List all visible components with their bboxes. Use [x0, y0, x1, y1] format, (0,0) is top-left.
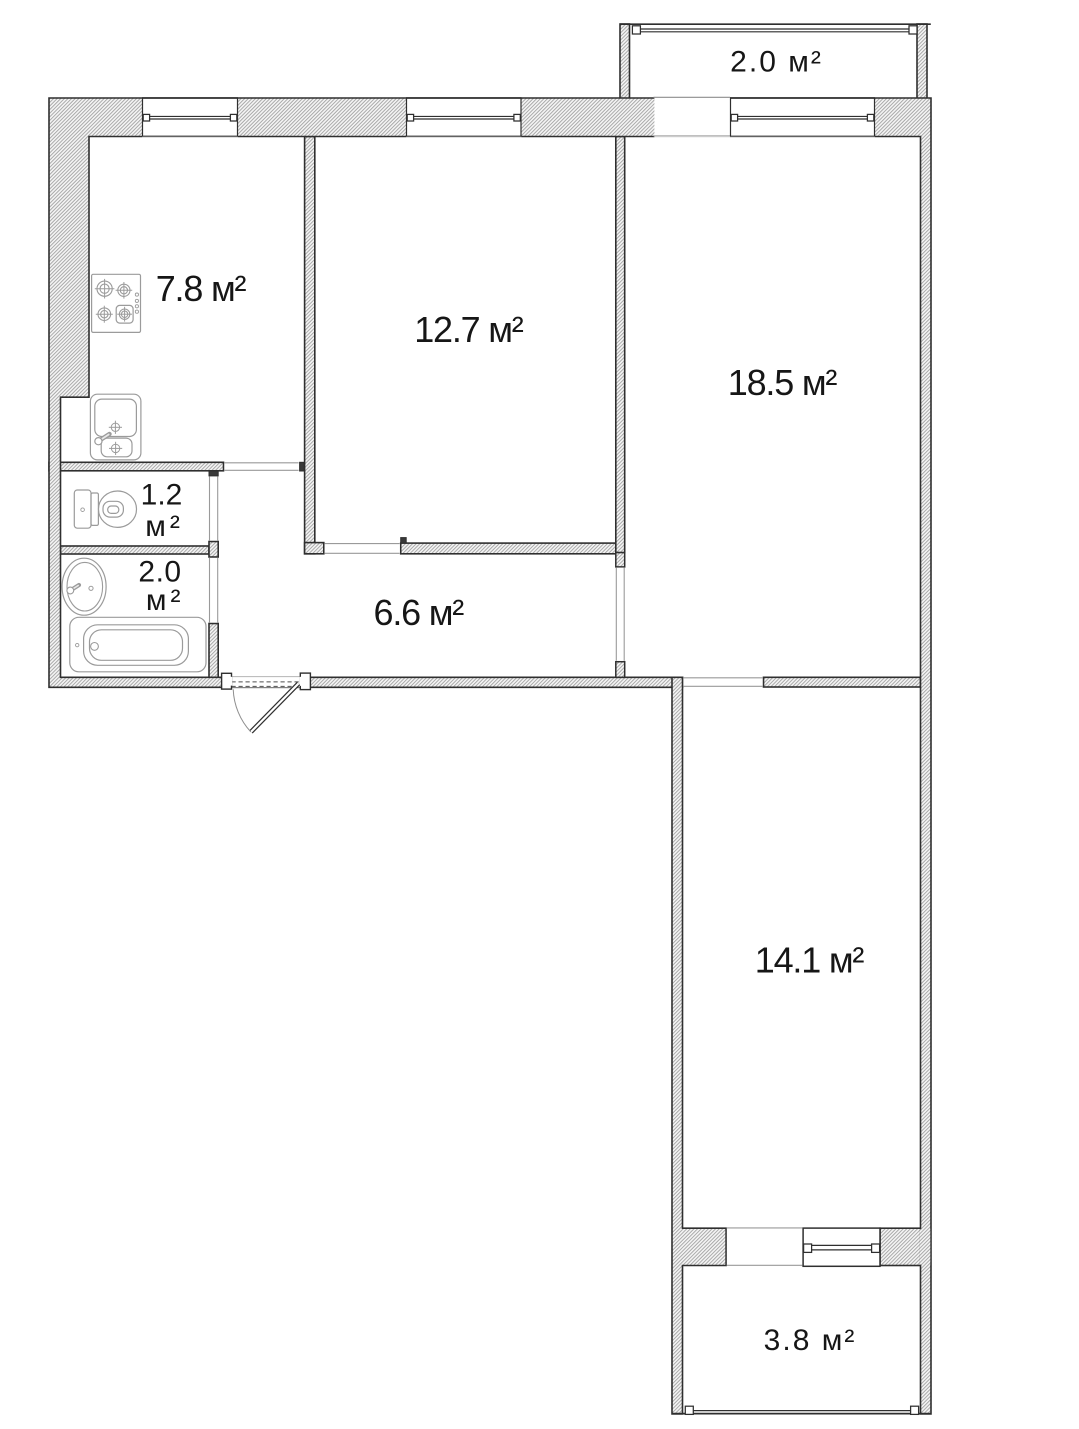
svg-text:7.8 м²: 7.8 м² [156, 268, 247, 309]
svg-text:14.1 м²: 14.1 м² [755, 940, 865, 981]
svg-text:12.7 м²: 12.7 м² [414, 309, 524, 350]
svg-text:18.5 м²: 18.5 м² [728, 362, 838, 403]
svg-text:м²: м² [146, 584, 185, 617]
svg-text:3.8 м²: 3.8 м² [764, 1324, 857, 1357]
svg-text:6.6 м²: 6.6 м² [374, 592, 465, 633]
svg-text:2.0 м²: 2.0 м² [730, 46, 823, 79]
svg-text:1.2: 1.2 [141, 478, 183, 511]
svg-text:м²: м² [145, 510, 184, 543]
